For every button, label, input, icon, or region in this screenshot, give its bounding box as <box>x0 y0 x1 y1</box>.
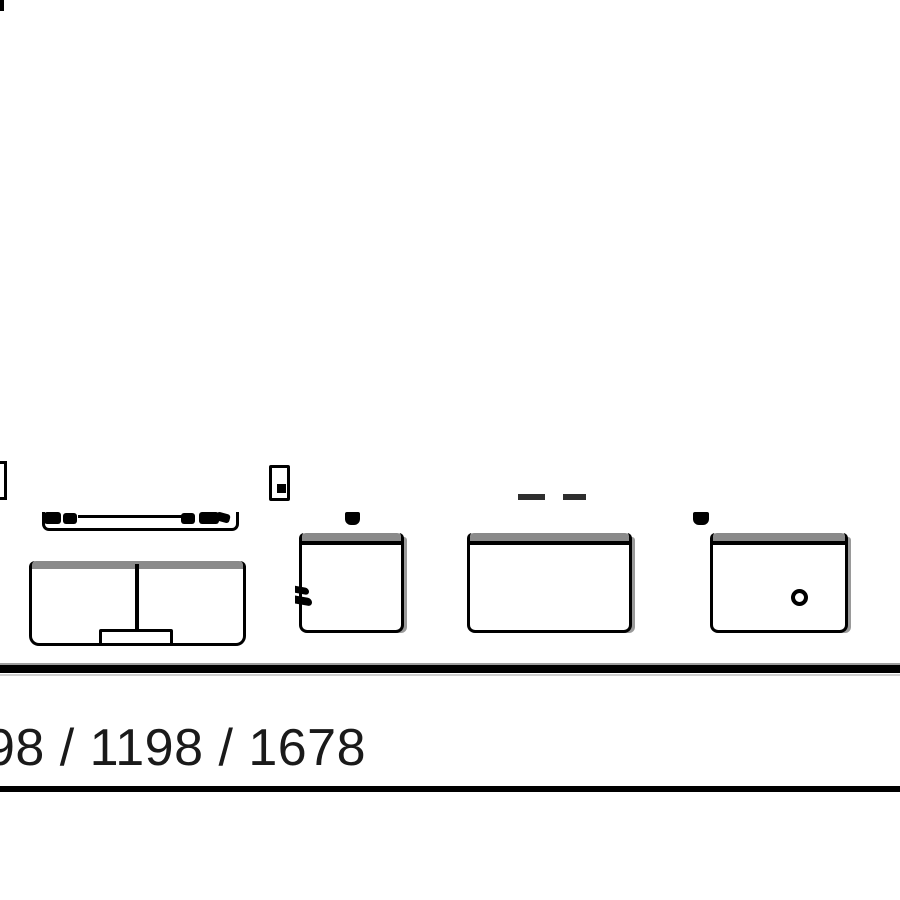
trolley-link-bar <box>78 515 182 518</box>
rail-stop-knob <box>345 512 360 525</box>
base-line <box>0 665 900 673</box>
cabinet-door-divider <box>135 564 139 633</box>
drawer-front-plain <box>467 533 632 633</box>
center-stop-bracket <box>269 465 290 501</box>
edge-stop-bracket <box>0 461 7 500</box>
door-top-line <box>302 541 401 545</box>
dimension-label: 98 / 1198 / 1678 <box>0 722 366 774</box>
base-line-shadow <box>0 674 900 676</box>
door-front-with-knob <box>710 533 848 633</box>
drawer-top-line <box>470 541 629 545</box>
rail-fixing-mark <box>563 494 586 500</box>
cabinet-foot-pedal <box>99 629 173 646</box>
bottom-rule <box>0 786 900 792</box>
rail-stop-knob <box>693 512 709 525</box>
door-front-latched <box>299 533 404 633</box>
sliding-panel-right <box>0 0 4 11</box>
trolley-roller <box>44 512 61 524</box>
door-top-line <box>713 541 845 545</box>
door-top-edge <box>713 533 845 541</box>
bracket-screw-dot <box>277 484 286 493</box>
door-latch-icon <box>295 586 309 595</box>
drawer-top-edge <box>470 533 629 541</box>
trolley-roller <box>181 513 195 524</box>
trolley-roller <box>63 513 77 524</box>
rail-fixing-mark <box>518 494 545 500</box>
door-top-edge <box>302 533 401 541</box>
technical-drawing-canvas: 98 / 1198 / 1678 <box>0 0 900 900</box>
round-knob-icon <box>791 589 808 606</box>
